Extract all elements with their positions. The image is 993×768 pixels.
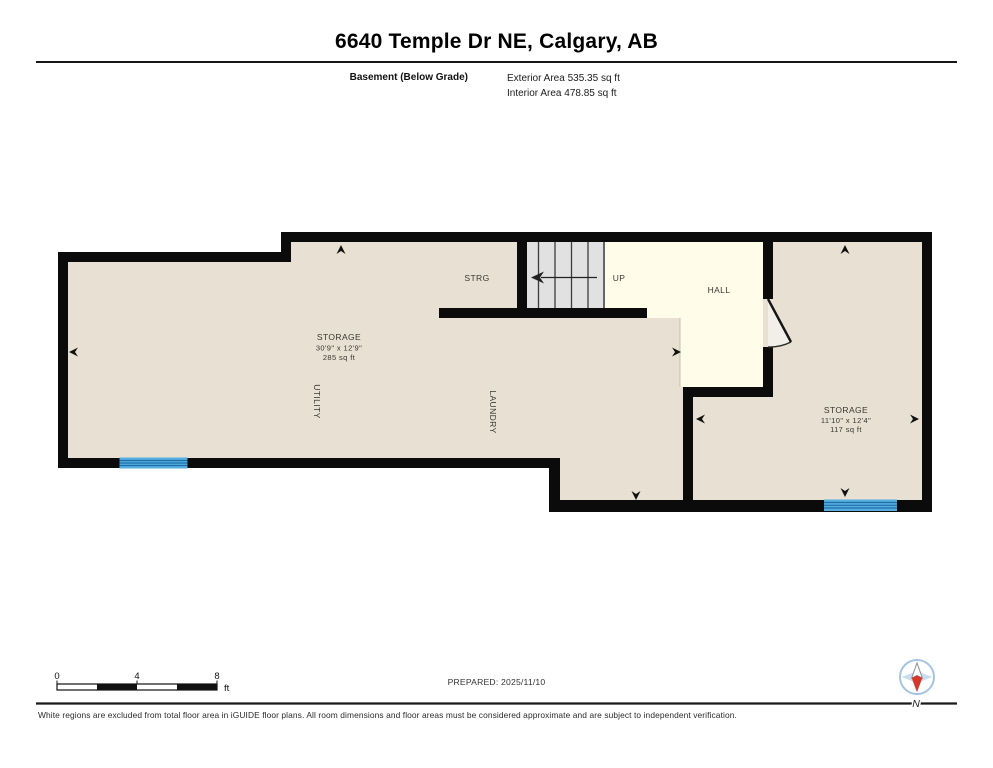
window-left <box>120 458 188 469</box>
label-hall: HALL <box>708 285 731 295</box>
label-strg: STRG <box>464 273 489 283</box>
floorplan-page: 6640 Temple Dr NE, Calgary, AB Basement … <box>0 0 993 768</box>
staircase <box>527 242 605 309</box>
label-storage-main-area: 285 sq ft <box>323 353 356 362</box>
label-laundry: LAUNDRY <box>488 390 498 433</box>
label-storage-right: STORAGE <box>824 405 868 415</box>
label-storage-main: STORAGE <box>317 332 361 342</box>
label-up: UP <box>613 273 626 283</box>
label-storage-right-dims: 11'10" x 12'4" <box>821 416 871 425</box>
label-storage-right-area: 117 sq ft <box>830 425 862 434</box>
label-storage-main-dims: 30'9" x 12'9" <box>316 344 362 353</box>
compass-north-label: N <box>912 698 920 710</box>
label-utility: UTILITY <box>312 384 322 418</box>
floorplan-drawing: STRG UP HALL STORAGE 30'9" x 12'9" 285 s… <box>0 0 993 768</box>
disclaimer-text: White regions are excluded from total fl… <box>38 710 798 720</box>
prepared-date: PREPARED: 2025/11/10 <box>0 677 993 687</box>
window-right <box>824 500 897 512</box>
